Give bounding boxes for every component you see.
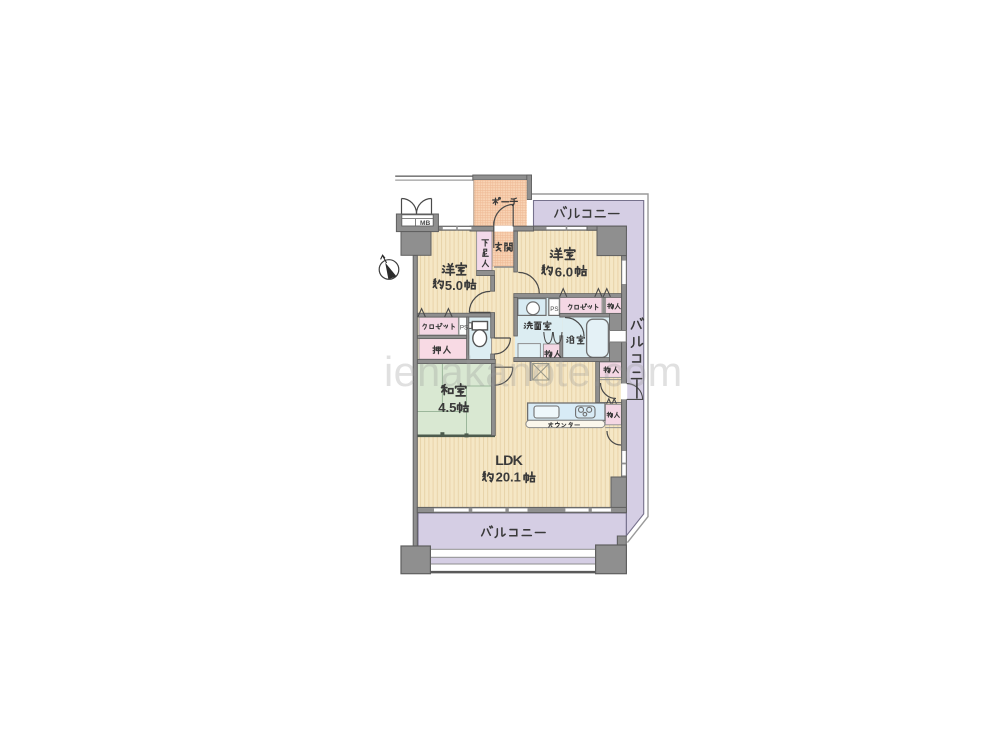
svg-text:20.1: 20.1 bbox=[496, 469, 521, 484]
svg-text:PS: PS bbox=[550, 306, 558, 313]
svg-text:LDK: LDK bbox=[495, 453, 523, 469]
svg-text:PS: PS bbox=[460, 324, 468, 331]
svg-text:6.0: 6.0 bbox=[555, 264, 573, 279]
svg-text:MB: MB bbox=[420, 220, 430, 227]
svg-text:4.5: 4.5 bbox=[438, 400, 456, 415]
svg-text:5.0: 5.0 bbox=[445, 278, 463, 293]
